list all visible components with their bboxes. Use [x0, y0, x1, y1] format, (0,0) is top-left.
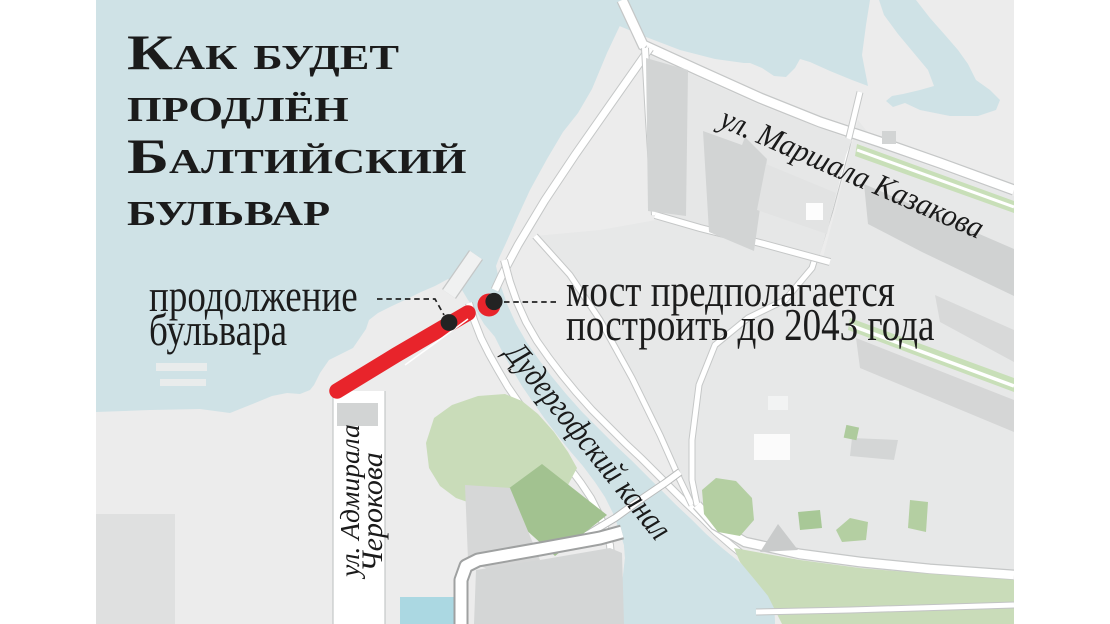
svg-text:Черокова: Черокова — [356, 452, 389, 572]
